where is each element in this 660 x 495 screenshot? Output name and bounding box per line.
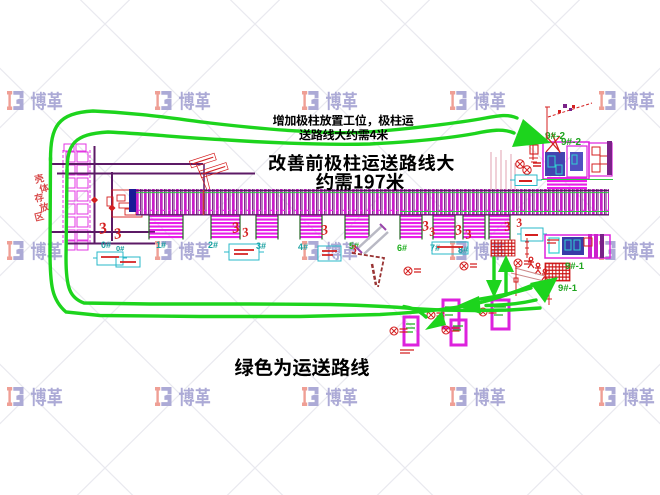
svg-text:0#: 0# xyxy=(101,240,111,250)
svg-text:9#-2: 9#-2 xyxy=(561,137,581,148)
svg-text:3#: 3# xyxy=(256,241,266,251)
svg-text:2#: 2# xyxy=(208,240,218,250)
svg-text:6#: 6# xyxy=(397,243,407,253)
svg-text:4#: 4# xyxy=(298,242,308,252)
svg-text:9#-1: 9#-1 xyxy=(558,283,578,294)
svg-text:9#-1: 9#-1 xyxy=(565,261,585,272)
svg-text:1#: 1# xyxy=(156,240,166,250)
